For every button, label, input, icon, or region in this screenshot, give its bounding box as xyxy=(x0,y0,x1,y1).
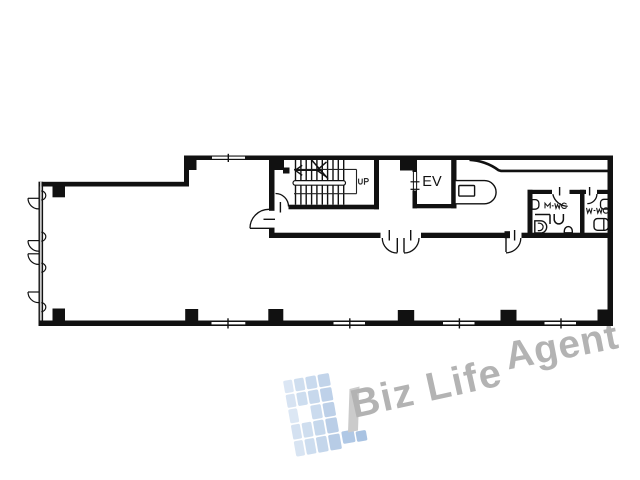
svg-text:Biz Life: Biz Life xyxy=(346,350,506,426)
svg-text:EV: EV xyxy=(422,174,442,190)
